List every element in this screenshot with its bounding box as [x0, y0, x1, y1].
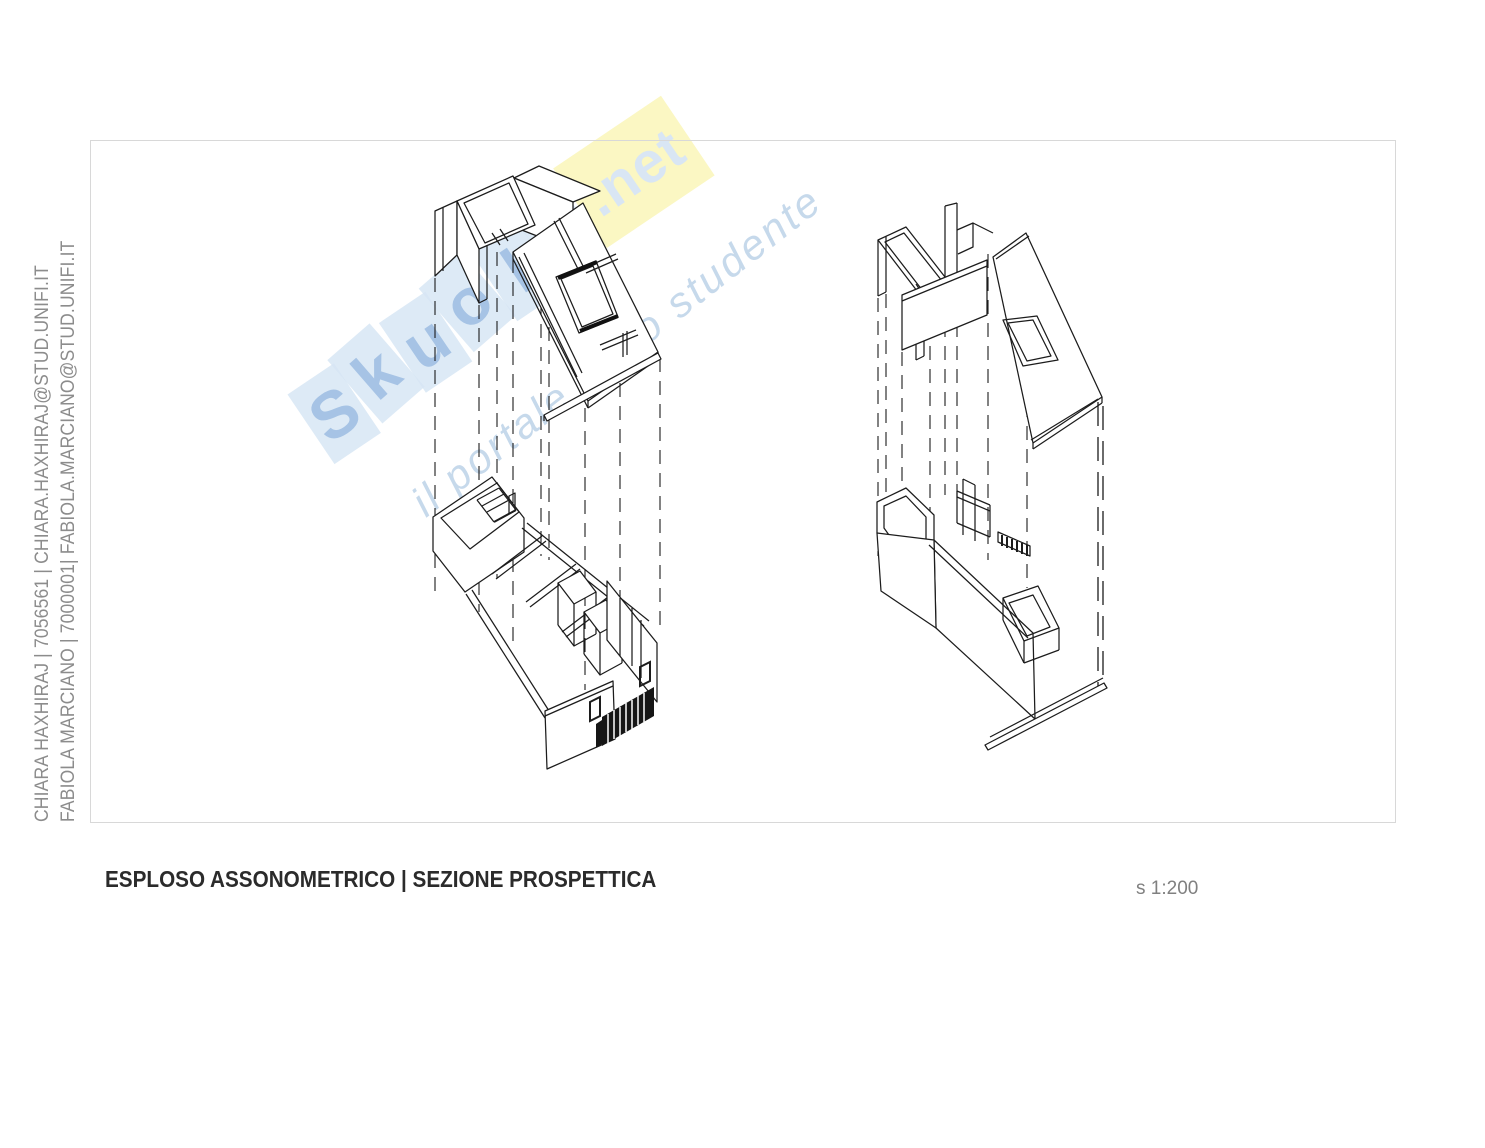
drawing-title: ESPLOSO ASSONOMETRICO | SEZIONE PROSPETT… [105, 866, 656, 893]
author-credits: CHIARA HAXHIRAJ | 7056561 | CHIARA.HAXHI… [30, 190, 82, 822]
credit-line-1: CHIARA HAXHIRAJ | 7056561 | CHIARA.HAXHI… [30, 241, 56, 822]
credit-line-2: FABIOLA MARCIANO | 7000001| FABIOLA.MARC… [56, 241, 82, 822]
drawing-sheet-frame [90, 140, 1396, 823]
scale-label: s 1:200 [1136, 878, 1198, 900]
document-page: { "page": {"width": 1485, "height": 1148… [0, 0, 1485, 1148]
